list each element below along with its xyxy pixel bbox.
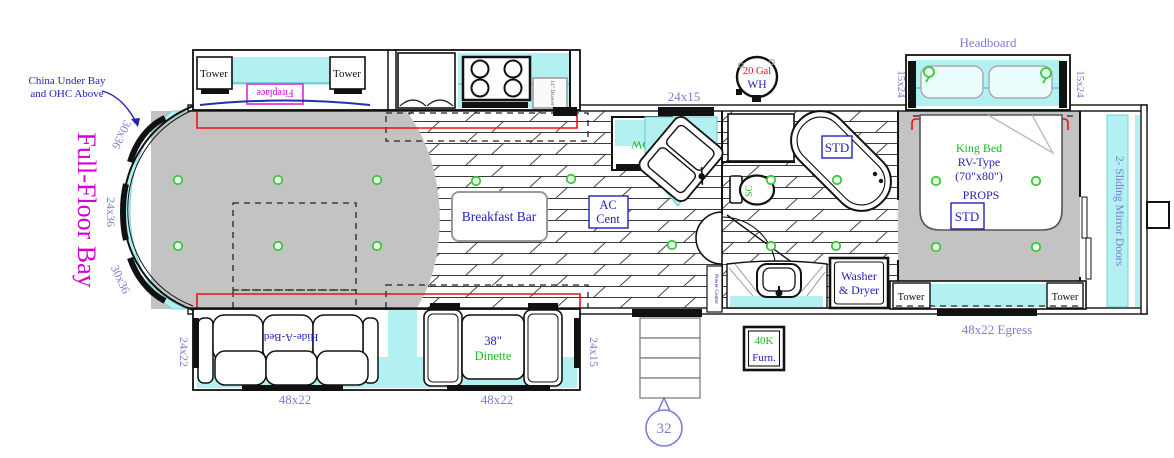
toilet-label: SC bbox=[745, 185, 755, 197]
callout-pointer bbox=[658, 398, 670, 411]
hide-a-bed-label: Hide-A-Bed bbox=[263, 331, 318, 343]
island-window-dim: 24x15 bbox=[668, 89, 701, 104]
water-heater: 20 Gal WH bbox=[736, 57, 777, 102]
headboard-window-dim-left: 15x24 bbox=[895, 70, 907, 98]
bed-std-label: STD bbox=[955, 209, 980, 224]
tower-label-1: Tower bbox=[200, 68, 228, 80]
linen-cabinet bbox=[728, 114, 794, 161]
mirror-doors-label: 2- Sliding Mirror Doors bbox=[1113, 156, 1125, 267]
end-table bbox=[388, 310, 417, 388]
full-floor-bay-label: Full-Floor Bay bbox=[72, 132, 101, 287]
ac-label-1: AC bbox=[599, 198, 616, 212]
dinette-bench-right bbox=[524, 310, 562, 386]
rear-bumper bbox=[1147, 202, 1169, 228]
bedroom-dresser-row: Tower Tower bbox=[890, 281, 1086, 309]
dinette-label: Dinette bbox=[475, 349, 512, 363]
bed-label-2: RV-Type bbox=[958, 155, 1000, 169]
pillow-1 bbox=[921, 66, 983, 98]
front-window-dim-1: 30x36 bbox=[109, 118, 134, 151]
front-window-2 bbox=[123, 184, 126, 240]
tub-std-label: STD bbox=[825, 140, 850, 155]
refrigerator bbox=[398, 53, 455, 108]
floor-plan-canvas: Tower Tower Fireplace 14" Drawer DW bbox=[0, 0, 1174, 458]
pillow-2 bbox=[989, 66, 1052, 98]
mirror-door-panel-1 bbox=[1082, 197, 1087, 238]
china-bay-note-2: and OHC Above bbox=[30, 88, 103, 100]
washer-label-1: Washer bbox=[841, 269, 877, 283]
breakfast-bar-label: Breakfast Bar bbox=[462, 209, 537, 224]
china-bay-arrow bbox=[102, 91, 136, 122]
living-slide: Tower Tower Fireplace 14" Drawer bbox=[193, 50, 580, 110]
front-window-dim-2: 24x36 bbox=[104, 197, 118, 227]
sofa-side-window-dim: 24x22 bbox=[177, 337, 191, 367]
sofa-window-dim: 48x22 bbox=[279, 392, 312, 407]
island-window bbox=[658, 107, 714, 116]
tower-label-2: Tower bbox=[333, 68, 361, 80]
dinette-size-label: 38" bbox=[484, 334, 502, 348]
wardrobe-strip-thin bbox=[1135, 115, 1140, 307]
bed-label-4: PROPS bbox=[963, 188, 1000, 202]
egress-label: 48x22 Egress bbox=[962, 322, 1032, 337]
dinette-window-dim: 48x22 bbox=[481, 392, 514, 407]
sofa-armrest-left bbox=[198, 318, 213, 383]
headboard-window-dim-right: 15x24 bbox=[1074, 70, 1086, 98]
egress-window bbox=[937, 309, 1037, 316]
bed-label-1: King Bed bbox=[956, 141, 1002, 155]
entry-threshold bbox=[632, 309, 702, 317]
bedroom: King Bed RV-Type (70"x80") PROPS STD bbox=[920, 115, 1062, 230]
fireplace-label: Fireplace bbox=[256, 87, 294, 98]
wh-label-1: 20 Gal bbox=[743, 66, 771, 77]
tower-label-3: Tower bbox=[898, 292, 925, 303]
front-window-dim-3: 30x36 bbox=[108, 263, 133, 296]
wh-label-2: WH bbox=[747, 79, 766, 91]
tower-label-4: Tower bbox=[1052, 292, 1079, 303]
dinette-side-window-dim: 24x15 bbox=[587, 337, 601, 367]
furnace-label-2: Furn. bbox=[752, 352, 776, 364]
china-bay-note-1: China Under Bay bbox=[29, 75, 106, 87]
sofa-slide-window bbox=[242, 385, 343, 391]
power-center-label: Power Center bbox=[713, 274, 719, 304]
bed-label-3: (70"x80") bbox=[955, 169, 1003, 183]
headboard-label: Headboard bbox=[959, 35, 1017, 50]
dinette-bench-left bbox=[424, 310, 462, 386]
callout-number: 32 bbox=[657, 421, 672, 437]
rv-floor-plan: Tower Tower Fireplace 14" Drawer DW bbox=[0, 0, 1174, 458]
dinette-slide-window bbox=[447, 385, 550, 391]
headboard-slide bbox=[906, 55, 1070, 110]
entertainment-center bbox=[232, 57, 330, 85]
kitchen-window bbox=[553, 107, 577, 116]
furnace-label-1: 40K bbox=[755, 335, 774, 347]
drawer-label: 14" Drawer bbox=[549, 80, 555, 106]
sofa-dinette-slide: Hide-A-Bed 38" Dinette bbox=[193, 303, 580, 391]
ac-label-2: Cent bbox=[596, 212, 620, 226]
entry-steps bbox=[640, 318, 700, 398]
sofa-seat-cushions bbox=[215, 351, 368, 385]
washer-label-2: & Dryer bbox=[839, 283, 879, 297]
mirror-door-panel-2 bbox=[1086, 238, 1091, 279]
